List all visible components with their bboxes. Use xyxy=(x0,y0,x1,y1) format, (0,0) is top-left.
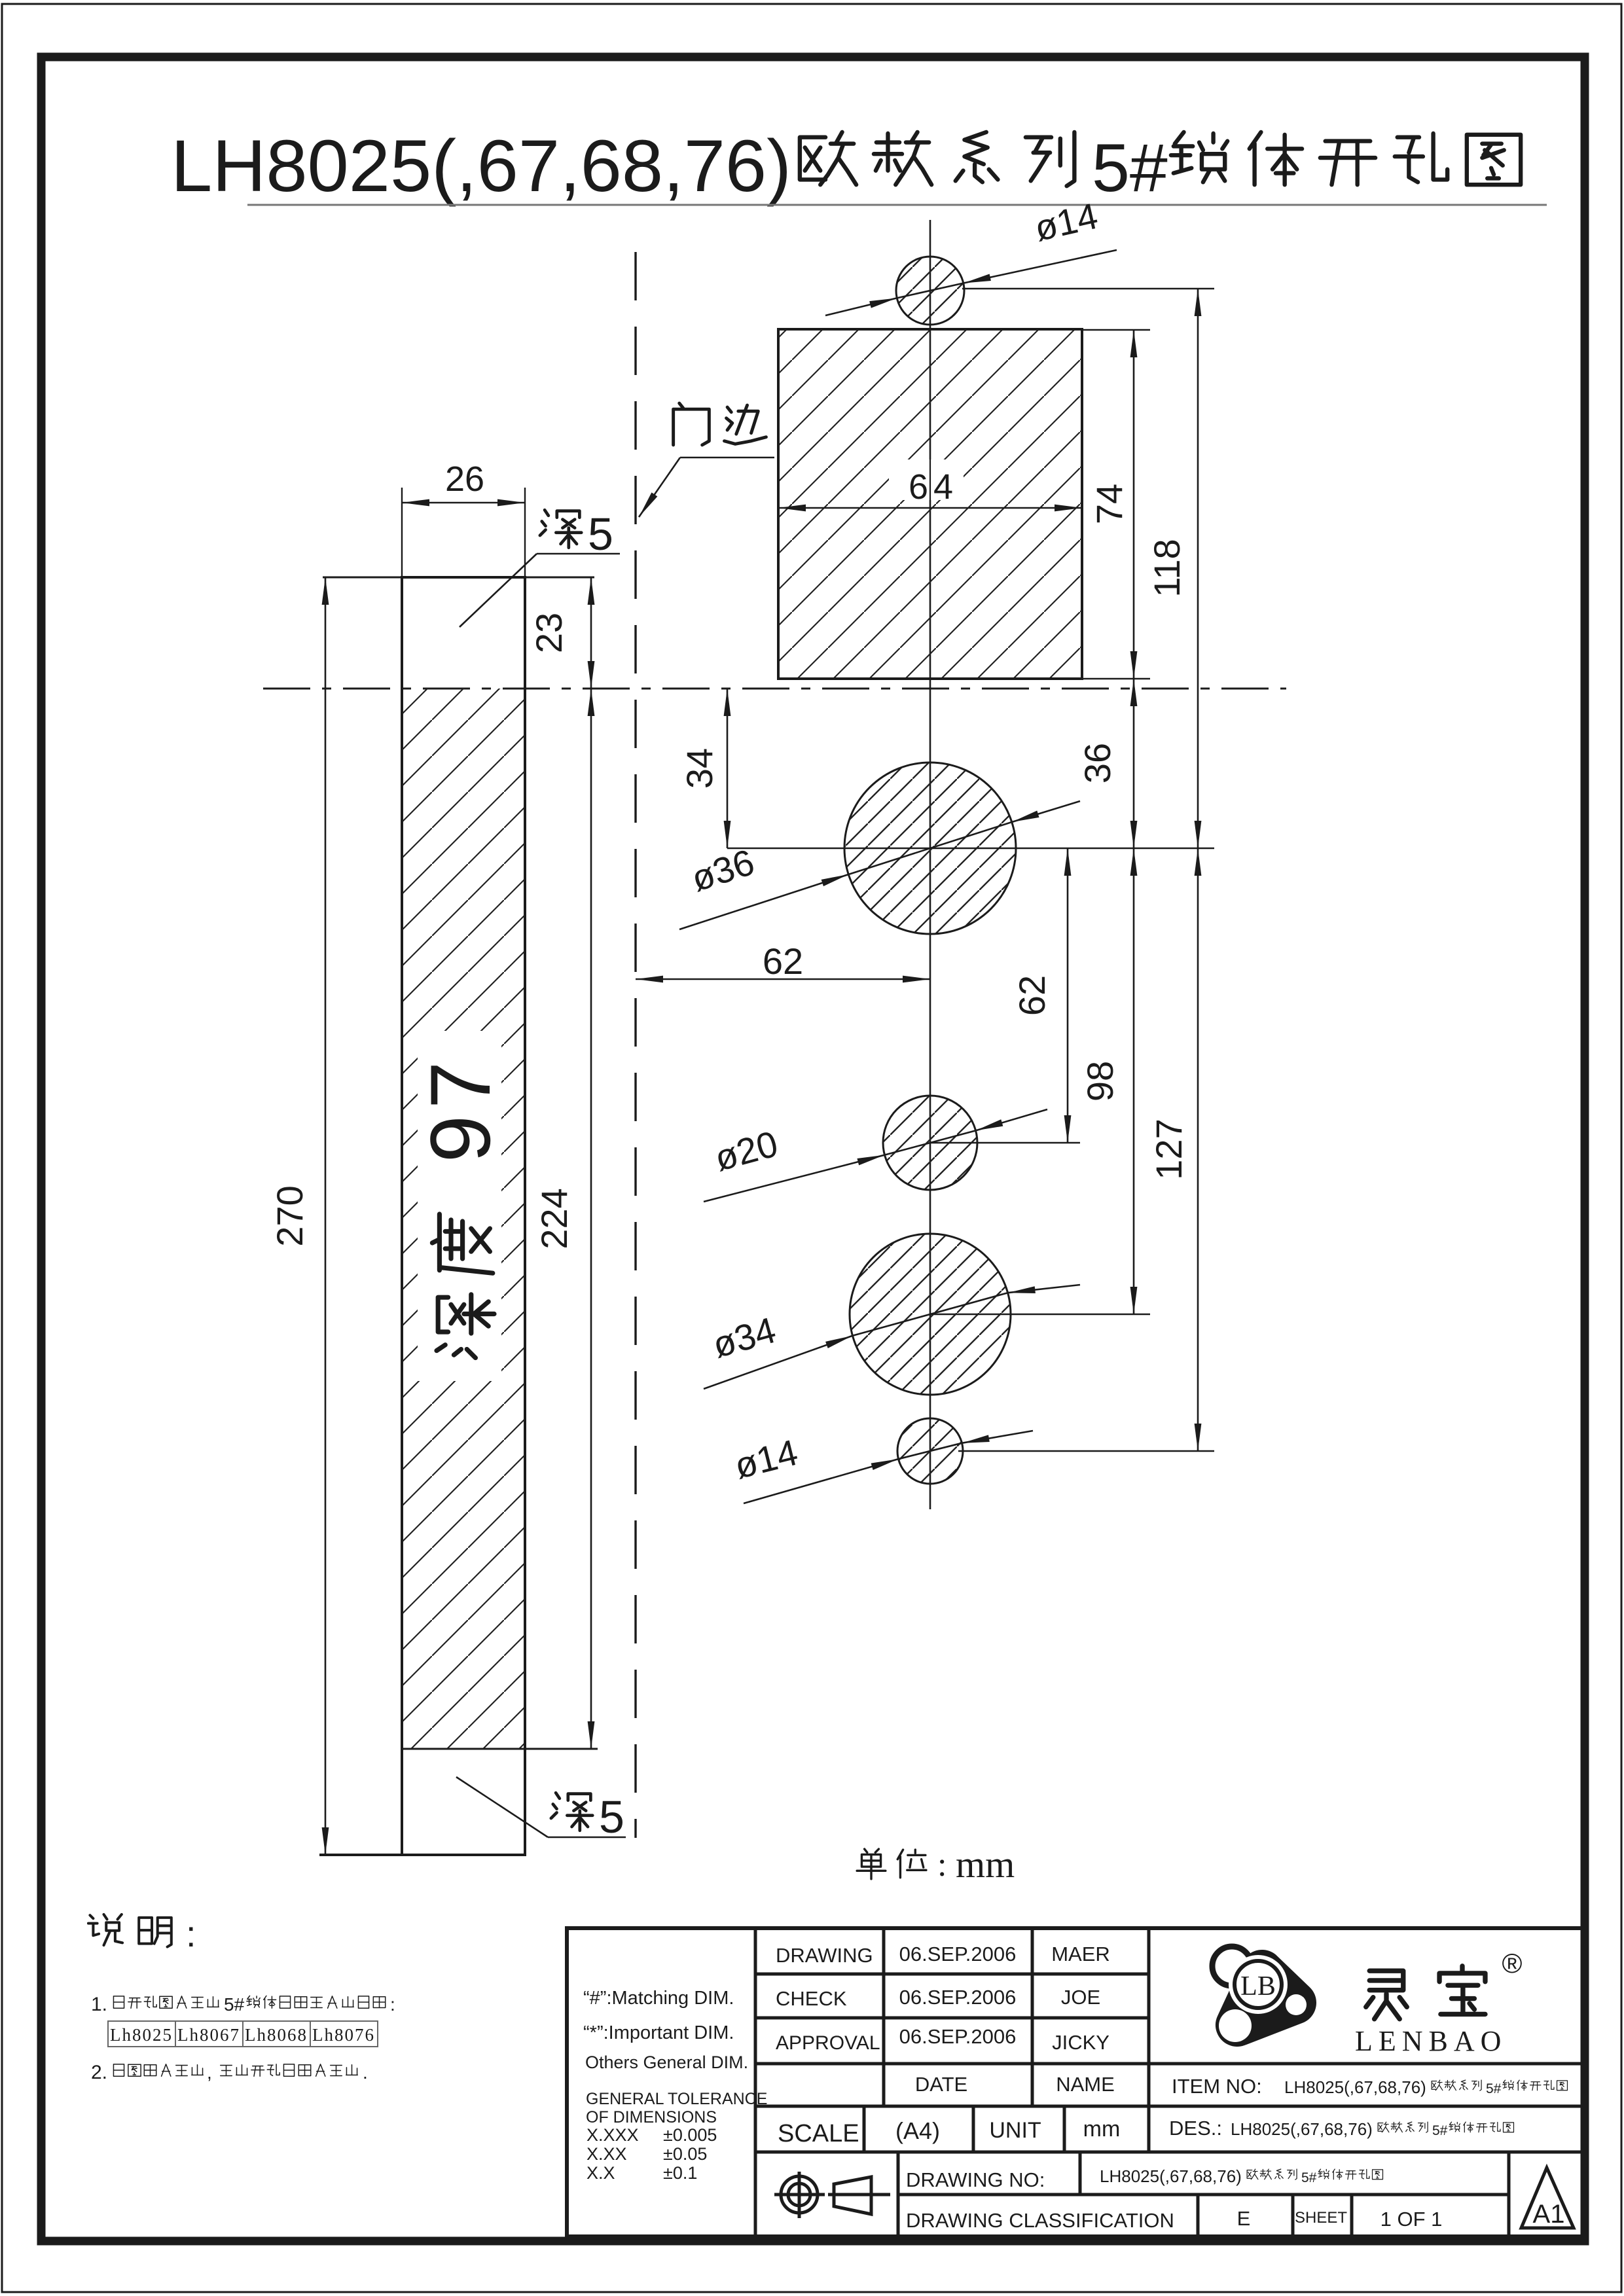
svg-text:23: 23 xyxy=(528,613,569,653)
svg-text:6: 6 xyxy=(909,467,928,507)
svg-text:(A4): (A4) xyxy=(895,2117,940,2144)
svg-text:127: 127 xyxy=(1148,1119,1189,1179)
svg-text:DES.:: DES.: xyxy=(1169,2117,1222,2140)
svg-text::: : xyxy=(937,1846,947,1884)
svg-text:mm: mm xyxy=(1083,2117,1121,2142)
svg-text:DRAWING NO:: DRAWING NO: xyxy=(906,2168,1045,2191)
svg-text:06.SEP.2006: 06.SEP.2006 xyxy=(899,1943,1017,1965)
svg-text:118: 118 xyxy=(1146,539,1187,597)
svg-text:MAER: MAER xyxy=(1051,1943,1110,1965)
svg-text:224: 224 xyxy=(533,1188,575,1249)
svg-text:,: , xyxy=(207,2062,212,2083)
svg-text:34: 34 xyxy=(679,748,720,789)
svg-text:OF DIMENSIONS: OF DIMENSIONS xyxy=(586,2108,717,2126)
svg-text:DRAWING CLASSIFICATION: DRAWING CLASSIFICATION xyxy=(906,2209,1174,2232)
svg-text:36: 36 xyxy=(1077,743,1118,783)
svg-text:±0.05: ±0.05 xyxy=(663,2144,707,2164)
svg-text:±0.005: ±0.005 xyxy=(663,2125,717,2145)
svg-text:X.XXX: X.XXX xyxy=(586,2125,639,2145)
svg-text:SHEET: SHEET xyxy=(1295,2209,1347,2227)
svg-text:X.X: X.X xyxy=(586,2163,615,2183)
svg-text:97: 97 xyxy=(412,1055,508,1163)
svg-text:JICKY: JICKY xyxy=(1052,2031,1110,2054)
svg-text:mm: mm xyxy=(956,1843,1015,1886)
svg-text:A1: A1 xyxy=(1533,2200,1565,2229)
svg-text:62: 62 xyxy=(763,941,803,982)
svg-text:4: 4 xyxy=(933,467,953,507)
svg-text:SCALE: SCALE xyxy=(778,2120,859,2147)
svg-text:5#: 5# xyxy=(224,1994,245,2015)
svg-text::: : xyxy=(390,1994,395,2015)
svg-text:5#: 5# xyxy=(1092,130,1168,206)
svg-text:2.: 2. xyxy=(91,2062,107,2083)
svg-text:Others General DIM.: Others General DIM. xyxy=(585,2053,748,2072)
svg-text:“*”:Important DIM.: “*”:Important DIM. xyxy=(583,2022,734,2043)
svg-text:06.SEP.2006: 06.SEP.2006 xyxy=(899,1986,1017,2009)
svg-text:5#: 5# xyxy=(1432,2123,1448,2138)
svg-text:Lh8068: Lh8068 xyxy=(245,2025,308,2045)
svg-text:“#”:Matching DIM.: “#”:Matching DIM. xyxy=(583,1988,734,2009)
svg-text:DRAWING: DRAWING xyxy=(776,1944,873,1967)
svg-text:LB: LB xyxy=(1240,1971,1276,2001)
svg-text:98: 98 xyxy=(1079,1061,1121,1102)
svg-text:5: 5 xyxy=(588,509,613,560)
svg-text:Lh8076: Lh8076 xyxy=(312,2025,375,2045)
svg-text:JOE: JOE xyxy=(1061,1986,1100,2009)
svg-text:Lh8025: Lh8025 xyxy=(110,2025,173,2045)
svg-text:74: 74 xyxy=(1089,484,1130,524)
svg-text:®: ® xyxy=(1502,1948,1523,1979)
svg-text:GENERAL TOLERANCE: GENERAL TOLERANCE xyxy=(586,2090,767,2108)
svg-text:LH8025(,67,68,76): LH8025(,67,68,76) xyxy=(1231,2119,1373,2139)
svg-text:Lh8067: Lh8067 xyxy=(177,2025,240,2045)
svg-text:1 OF 1: 1 OF 1 xyxy=(1380,2208,1443,2231)
svg-text:62: 62 xyxy=(1011,975,1053,1016)
svg-text:1.: 1. xyxy=(91,1994,107,2015)
svg-text:ITEM NO:: ITEM NO: xyxy=(1172,2075,1262,2098)
svg-text::: : xyxy=(186,1913,196,1954)
svg-text:5#: 5# xyxy=(1301,2170,1317,2185)
svg-text:.: . xyxy=(363,2062,368,2083)
svg-text:LH8025(,67,68,76): LH8025(,67,68,76) xyxy=(1100,2166,1242,2186)
svg-text:LH8025(,67,68,76): LH8025(,67,68,76) xyxy=(171,125,791,207)
svg-text:26: 26 xyxy=(445,459,484,499)
svg-text:NAME: NAME xyxy=(1056,2073,1115,2096)
svg-text:CHECK: CHECK xyxy=(776,1987,847,2010)
svg-text:E: E xyxy=(1237,2207,1251,2230)
svg-text:APPROVAL: APPROVAL xyxy=(776,2032,880,2054)
svg-text:06.SEP.2006: 06.SEP.2006 xyxy=(899,2025,1017,2048)
svg-text:LENBAO: LENBAO xyxy=(1355,2025,1507,2057)
svg-text:5#: 5# xyxy=(1486,2081,1502,2096)
svg-text:5: 5 xyxy=(599,1791,624,1842)
svg-text:UNIT: UNIT xyxy=(989,2118,1041,2143)
svg-text:DATE: DATE xyxy=(915,2073,967,2096)
svg-text:LH8025(,67,68,76): LH8025(,67,68,76) xyxy=(1284,2077,1426,2097)
svg-text:±0.1: ±0.1 xyxy=(663,2163,697,2183)
svg-text:X.XX: X.XX xyxy=(586,2144,627,2164)
svg-text:270: 270 xyxy=(269,1185,310,1246)
